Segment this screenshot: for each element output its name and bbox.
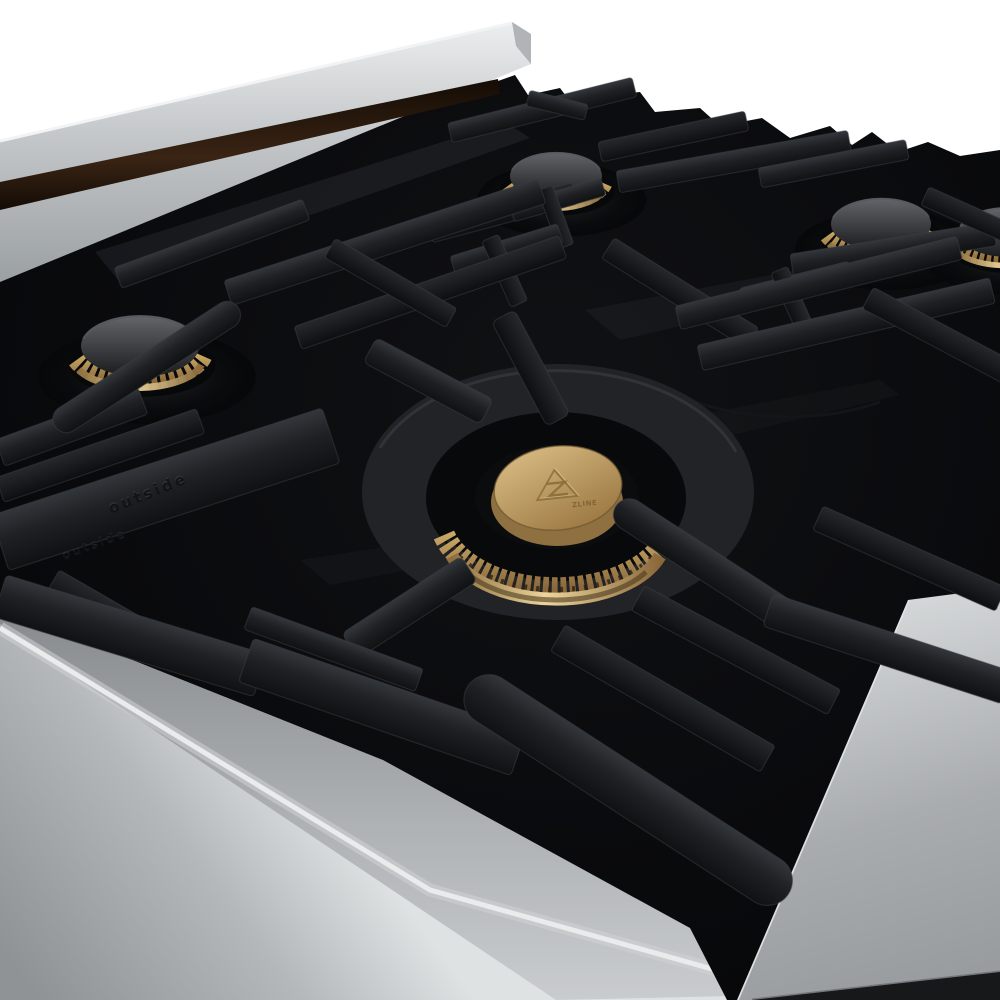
- product-photo: Close-up product photograph of a stainle…: [0, 0, 1000, 1000]
- rangetop-photo-canvas: Close-up product photograph of a stainle…: [0, 0, 1000, 1000]
